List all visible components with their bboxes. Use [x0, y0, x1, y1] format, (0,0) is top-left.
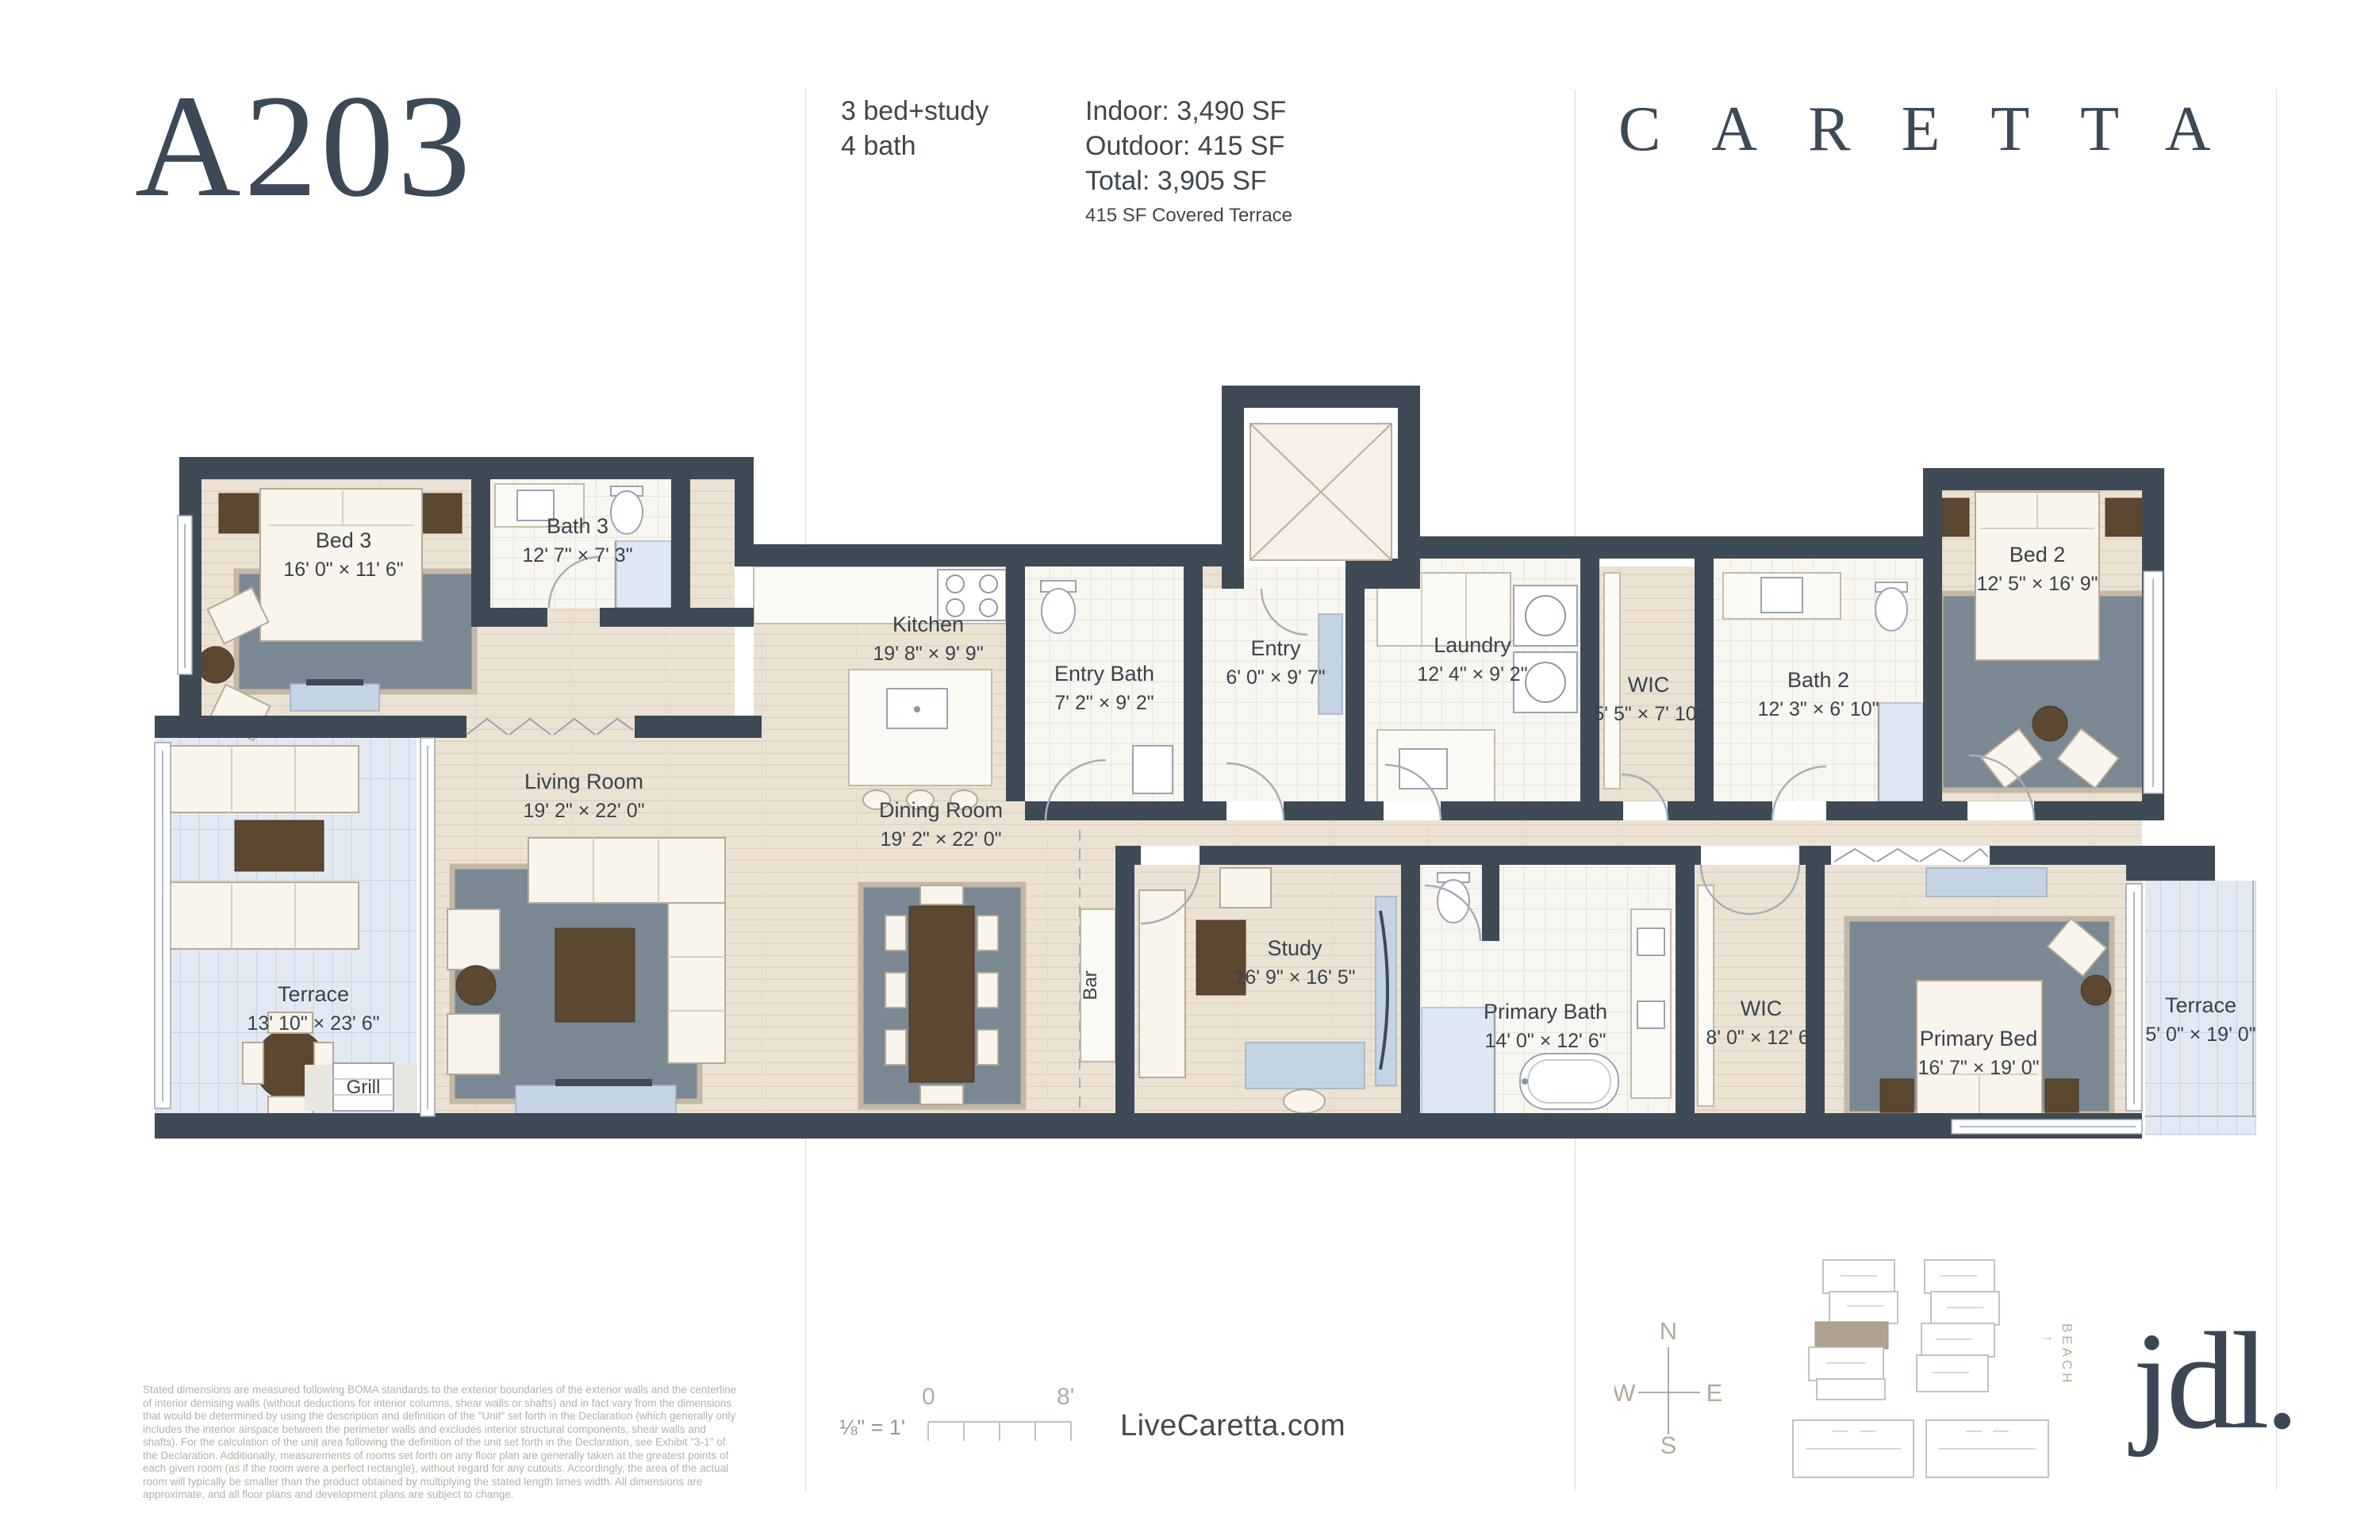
floorplan-drawing: Bed 316' 0" × 11' 6" Bath 312' 7" × 7' 3…: [143, 373, 2285, 1154]
desk-chair-icon: [1284, 1089, 1325, 1113]
sink-icon: [1637, 928, 1664, 955]
svg-text:14' 0" × 12' 6": 14' 0" × 12' 6": [1484, 1030, 1606, 1052]
nightstand-icon: [219, 493, 259, 533]
building-outlines: [1793, 1260, 2048, 1477]
shower: [1422, 1008, 1495, 1116]
svg-text:6' 0" × 9' 7": 6' 0" × 9' 7": [1226, 666, 1325, 689]
sink-icon: [1637, 1001, 1664, 1028]
svg-text:16' 7" × 19' 0": 16' 7" × 19' 0": [1917, 1057, 2039, 1079]
tv-icon: [306, 679, 363, 686]
chair-icon: [885, 973, 906, 1008]
chair-icon: [920, 1085, 963, 1104]
tv-icon: [555, 1079, 652, 1086]
media-console: [516, 1085, 676, 1114]
ruler-icon: [928, 1422, 1071, 1441]
compass-south: S: [1660, 1431, 1677, 1459]
shower: [1879, 703, 1923, 801]
chair-icon: [885, 1030, 906, 1065]
svg-text:Primary Bath: Primary Bath: [1484, 1000, 1607, 1023]
chair-icon: [977, 916, 998, 950]
svg-text:12' 5" × 16' 9": 12' 5" × 16' 9": [1976, 573, 2098, 595]
svg-text:12' 4" × 9' 2": 12' 4" × 9' 2": [1417, 663, 1527, 686]
bar-label: Bar: [1080, 970, 1101, 1000]
program-line-2: 4 bath: [841, 131, 916, 161]
svg-text:7' 2" × 9' 2": 7' 2" × 9' 2": [1054, 692, 1154, 714]
covered-terrace-note: 415 SF Covered Terrace: [1085, 205, 1292, 227]
svg-text:Dining Room: Dining Room: [879, 798, 1003, 822]
closet-shelf: [1698, 885, 1714, 1106]
svg-text:Terrace: Terrace: [278, 982, 349, 1006]
svg-text:5' 0" × 19' 0": 5' 0" × 19' 0": [2145, 1023, 2255, 1046]
nightstand-icon: [422, 493, 462, 533]
outdoor-sofa-icon: [168, 746, 359, 812]
side-table-icon: [456, 966, 496, 1005]
svg-text:Laundry: Laundry: [1434, 633, 1511, 657]
bathtub-icon: [1520, 1054, 1618, 1109]
unit-number: A203: [135, 73, 474, 220]
site-key-plan: → BEACH: [1777, 1254, 2094, 1515]
svg-text:12' 3" × 6' 10": 12' 3" × 6' 10": [1757, 698, 1879, 720]
bed2-furniture: [1931, 492, 2155, 790]
svg-text:16' 0" × 11' 6": 16' 0" × 11' 6": [283, 559, 403, 581]
sink-icon: [1133, 746, 1173, 793]
outdoor-sofa-icon: [168, 882, 359, 949]
svg-text:19' 2" × 22' 0": 19' 2" × 22' 0": [523, 800, 644, 822]
scale-bar: 0 8': [920, 1381, 1095, 1452]
area-summary: Indoor: 3,490 SFOutdoor: 415 SFTotal: 3,…: [1085, 94, 1286, 198]
nightstand-icon: [1880, 1079, 1914, 1112]
svg-text:12' 7" × 7' 3": 12' 7" × 7' 3": [522, 544, 632, 566]
bed-bath-program: 3 bed+study4 bath: [841, 94, 988, 163]
sectional-sofa-icon: [668, 903, 725, 1063]
chair-icon: [243, 1043, 263, 1084]
compass-north: N: [1660, 1317, 1677, 1345]
closet-shelf: [1604, 573, 1620, 789]
highlighted-unit: [1815, 1322, 1888, 1349]
compass-east: E: [1706, 1379, 1723, 1407]
svg-text:Living Room: Living Room: [524, 770, 643, 793]
toilet-icon: [611, 491, 643, 534]
chair-icon: [885, 916, 906, 950]
svg-text:Terrace: Terrace: [2165, 993, 2236, 1017]
svg-text:WIC: WIC: [1628, 673, 1669, 697]
svg-text:16' 9" × 16' 5": 16' 9" × 16' 5": [1234, 966, 1355, 989]
legal-disclaimer: Stated dimensions are measured following…: [143, 1384, 739, 1502]
beach-label: BEACH: [2059, 1323, 2075, 1386]
side-table-icon: [2033, 706, 2067, 741]
toilet-icon: [1875, 588, 1907, 631]
compass-icon: N S W E: [1614, 1309, 1741, 1460]
washer-icon: [1514, 586, 1577, 646]
brand-wordmark: CARETTA: [1618, 94, 2261, 166]
nightstand-icon: [2106, 498, 2144, 536]
toilet-icon: [1042, 589, 1075, 633]
svg-text:13' 10" × 23' 6": 13' 10" × 23' 6": [247, 1012, 379, 1035]
media-console: [290, 684, 379, 711]
sectional-sofa-icon: [528, 838, 725, 903]
armchair-icon: [1220, 868, 1271, 908]
svg-text:Bed 2: Bed 2: [2010, 543, 2066, 566]
svg-text:Entry: Entry: [1250, 636, 1301, 660]
armchair-icon: [447, 1014, 500, 1074]
scale-start: 0: [922, 1384, 935, 1410]
svg-text:WIC: WIC: [1741, 997, 1782, 1020]
website-url: LiveCaretta.com: [1120, 1409, 1345, 1443]
svg-text:Kitchen: Kitchen: [892, 613, 964, 636]
svg-text:5' 5" × 7' 10": 5' 5" × 7' 10": [1593, 703, 1703, 725]
svg-text:Bath 3: Bath 3: [547, 514, 608, 538]
sofa-icon: [1139, 890, 1185, 1077]
svg-text:Bed 3: Bed 3: [316, 528, 372, 552]
dining-table-icon: [909, 906, 974, 1082]
bench-icon: [1926, 868, 2047, 897]
chair-icon: [977, 973, 998, 1008]
sink-icon: [1761, 578, 1802, 613]
elevator-shaft: [1250, 424, 1392, 560]
svg-text:19' 2" × 22' 0": 19' 2" × 22' 0": [880, 828, 1001, 851]
compass-cross: [1638, 1347, 1700, 1434]
chair-icon: [977, 1030, 998, 1065]
dining-furniture: [861, 885, 1023, 1107]
svg-text:Study: Study: [1267, 936, 1322, 960]
area-total: Total: 3,905 SF: [1085, 166, 1267, 196]
entry-console: [1319, 614, 1342, 714]
program-line-1: 3 bed+study: [841, 96, 988, 126]
area-indoor: Indoor: 3,490 SF: [1085, 96, 1286, 126]
svg-text:Bath 2: Bath 2: [1787, 668, 1849, 692]
jdl-logo: jdl.: [2132, 1301, 2295, 1461]
side-table-icon: [198, 647, 234, 683]
armchair-icon: [447, 909, 500, 970]
grill-label: Grill: [347, 1077, 381, 1098]
compass-west: W: [1614, 1379, 1636, 1407]
svg-text:8' 0" × 12' 6": 8' 0" × 12' 6": [1706, 1027, 1816, 1049]
svg-text:Entry Bath: Entry Bath: [1054, 662, 1154, 686]
beach-arrow-icon: →: [2040, 1329, 2057, 1344]
scale-end: 8': [1057, 1384, 1074, 1410]
scale-label: ⅛" = 1': [839, 1415, 905, 1440]
coffee-table-icon: [555, 928, 635, 1022]
desk-icon: [1246, 1043, 1365, 1089]
chair-icon: [920, 885, 963, 904]
living-furniture: [447, 838, 725, 1114]
nightstand-icon: [2045, 1079, 2079, 1112]
coffee-table-icon: [235, 820, 324, 871]
floorplan-sheet: A203 3 bed+study4 bath Indoor: 3,490 SFO…: [0, 0, 2380, 1540]
svg-text:19' 8" × 9' 9": 19' 8" × 9' 9": [873, 643, 983, 665]
svg-text:Primary Bed: Primary Bed: [1920, 1027, 2038, 1050]
side-table-icon: [2081, 975, 2111, 1005]
area-outdoor: Outdoor: 415 SF: [1085, 131, 1284, 161]
